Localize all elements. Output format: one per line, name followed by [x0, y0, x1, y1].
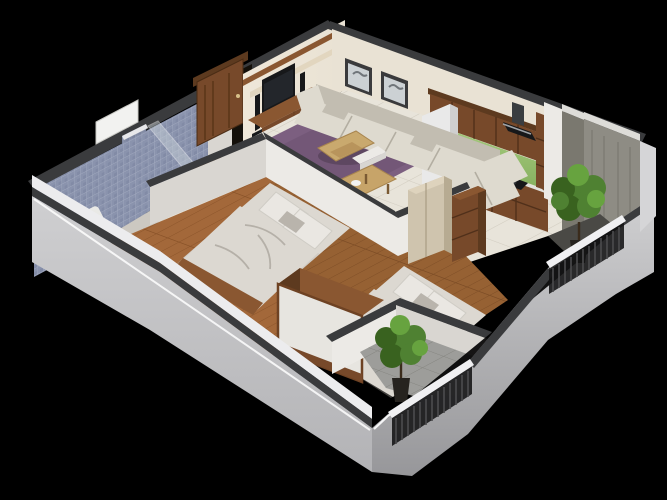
plant-pot-front [392, 378, 410, 402]
dinner-plate [351, 180, 361, 186]
floor-plan-canvas [0, 0, 667, 500]
bedroom2-wardrobe [452, 186, 486, 262]
door-knob [236, 94, 240, 98]
range-hood-chimney [512, 102, 524, 126]
shower-partition-wall [122, 124, 146, 228]
right-outer-wall [640, 141, 656, 232]
floor-plan-render [0, 0, 667, 500]
